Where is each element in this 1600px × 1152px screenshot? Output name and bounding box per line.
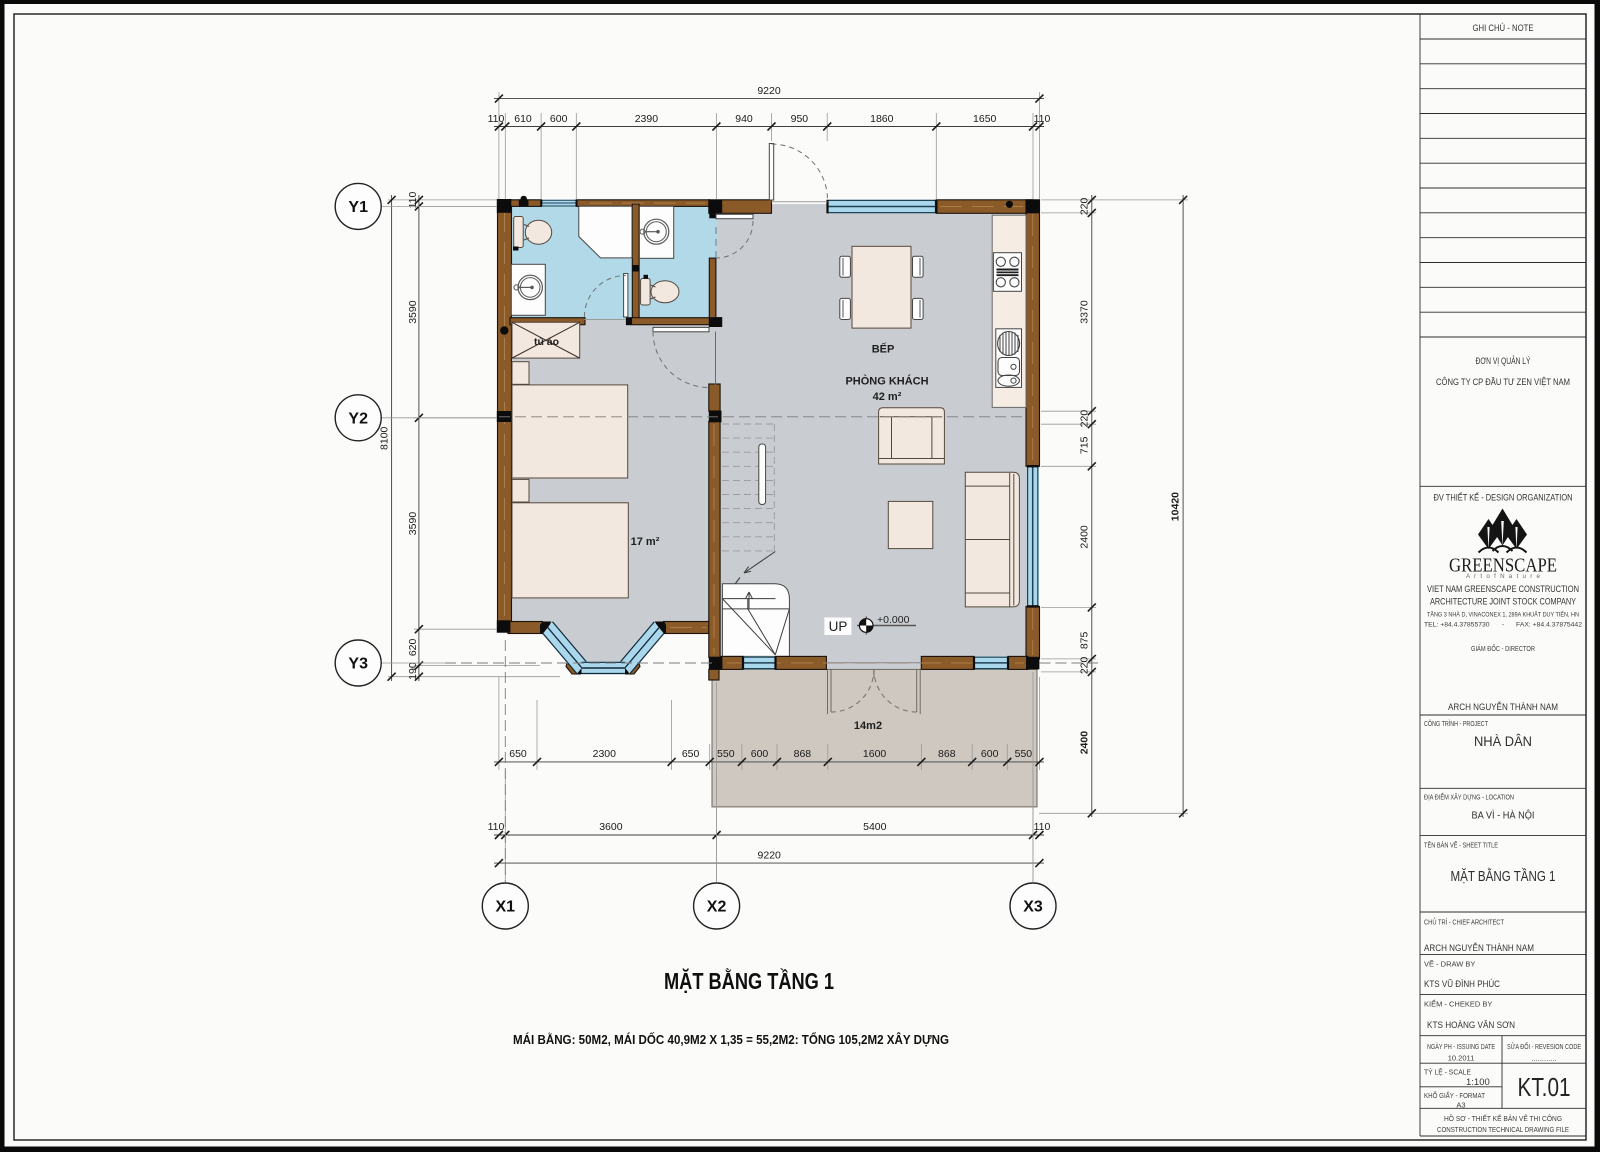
svg-text:ARCH NGUYỄN THÀNH NAM: ARCH NGUYỄN THÀNH NAM xyxy=(1424,942,1534,954)
svg-text:X2: X2 xyxy=(707,899,727,916)
svg-text:650: 650 xyxy=(682,748,700,760)
svg-text:868: 868 xyxy=(938,748,956,760)
svg-text:VẼ - DRAW BY: VẼ - DRAW BY xyxy=(1424,960,1475,969)
svg-text:620: 620 xyxy=(407,638,419,656)
svg-text:600: 600 xyxy=(981,748,999,760)
svg-text:Y3: Y3 xyxy=(348,656,368,673)
svg-text:220: 220 xyxy=(1079,410,1091,428)
svg-text:MẶT BẰNG TẦNG 1: MẶT BẰNG TẦNG 1 xyxy=(1451,867,1556,885)
svg-text:550: 550 xyxy=(1015,748,1033,760)
svg-text:220: 220 xyxy=(1079,656,1091,674)
svg-text:ARCHITECTURE JOINT STOCK COMPA: ARCHITECTURE JOINT STOCK COMPANY xyxy=(1430,597,1577,608)
svg-text:KTS VŨ ĐÌNH PHÚC: KTS VŨ ĐÌNH PHÚC xyxy=(1424,979,1500,990)
svg-text:A r t o f N a t u r e: A r t o f N a t u r e xyxy=(1466,573,1541,580)
svg-text:KHỔ GIẤY - FORMAT: KHỔ GIẤY - FORMAT xyxy=(1424,1090,1485,1100)
svg-text:CÔNG TRÌNH - PROJECT: CÔNG TRÌNH - PROJECT xyxy=(1424,719,1488,728)
svg-text:CÔNG TY CP ĐẦU TƯ ZEN VIỆT NAM: CÔNG TY CP ĐẦU TƯ ZEN VIỆT NAM xyxy=(1436,377,1570,388)
svg-text:10.2011: 10.2011 xyxy=(1448,1054,1475,1063)
svg-text:3600: 3600 xyxy=(599,821,623,833)
svg-text:1600: 1600 xyxy=(863,748,887,760)
svg-text:2390: 2390 xyxy=(635,113,659,125)
svg-text:ĐƠN VỊ QUẢN LÝ: ĐƠN VỊ QUẢN LÝ xyxy=(1476,355,1531,367)
svg-text:17 m²: 17 m² xyxy=(631,536,660,548)
svg-text:3590: 3590 xyxy=(407,300,419,324)
svg-text:CHỦ TRÌ - CHIEF ARCHITECT: CHỦ TRÌ - CHIEF ARCHITECT xyxy=(1424,918,1504,927)
svg-text:940: 940 xyxy=(735,113,753,125)
svg-text:VIET NAM GREENSCAPE CONSTRUCTI: VIET NAM GREENSCAPE CONSTRUCTION xyxy=(1427,584,1579,595)
svg-text:TEL: +84.4.37855730: TEL: +84.4.37855730 xyxy=(1424,622,1490,629)
svg-text:............: ............ xyxy=(1531,1054,1556,1063)
svg-text:110: 110 xyxy=(1034,113,1051,125)
svg-text:9220: 9220 xyxy=(758,850,782,862)
svg-text:600: 600 xyxy=(751,748,769,760)
svg-text:190: 190 xyxy=(407,662,419,680)
svg-text:610: 610 xyxy=(514,113,532,125)
svg-text:14m2: 14m2 xyxy=(854,720,882,732)
svg-text:2300: 2300 xyxy=(593,748,617,760)
svg-text:+0.000: +0.000 xyxy=(877,614,910,626)
svg-text:5400: 5400 xyxy=(863,821,887,833)
svg-text:42 m²: 42 m² xyxy=(873,391,902,403)
svg-text:110: 110 xyxy=(407,191,419,208)
svg-text:HỒ SƠ - THIẾT KẾ BẢN VẼ THI CÔ: HỒ SƠ - THIẾT KẾ BẢN VẼ THI CÔNG xyxy=(1444,1113,1562,1123)
svg-text:1:100: 1:100 xyxy=(1466,1077,1490,1088)
svg-text:CONSTRUCTION TECHNICAL DRAWING: CONSTRUCTION TECHNICAL DRAWING FILE xyxy=(1437,1125,1569,1134)
svg-text:Y1: Y1 xyxy=(348,199,368,216)
svg-text:TỶ LỆ - SCALE: TỶ LỆ - SCALE xyxy=(1424,1068,1471,1077)
svg-text:110: 110 xyxy=(488,113,505,125)
svg-text:875: 875 xyxy=(1079,631,1091,649)
svg-text:UP: UP xyxy=(829,619,848,634)
svg-text:950: 950 xyxy=(791,113,809,125)
svg-text:SỬA ĐỔI - REVESION CODE: SỬA ĐỔI - REVESION CODE xyxy=(1507,1042,1581,1051)
svg-text:FAX: +84.4.37875442: FAX: +84.4.37875442 xyxy=(1516,622,1582,629)
svg-text:600: 600 xyxy=(550,113,568,125)
svg-text:1650: 1650 xyxy=(973,113,997,125)
svg-text:BA VÌ - HÀ NỘI: BA VÌ - HÀ NỘI xyxy=(1472,809,1535,822)
svg-text:110: 110 xyxy=(1034,821,1051,833)
svg-text:X3: X3 xyxy=(1023,899,1043,916)
svg-text:MÁI BẰNG: 50M2, MÁI DỐC 40,9M2: MÁI BẰNG: 50M2, MÁI DỐC 40,9M2 X 1,35 = … xyxy=(513,1032,949,1047)
svg-text:ĐV THIẾT KẾ - DESIGN ORGANIZAT: ĐV THIẾT KẾ - DESIGN ORGANIZATION xyxy=(1434,493,1573,504)
svg-text:8100: 8100 xyxy=(378,426,390,450)
svg-text:110: 110 xyxy=(488,821,505,833)
svg-text:220: 220 xyxy=(1079,197,1091,215)
svg-text:TÊN BẢN VẼ - SHEET TITLE: TÊN BẢN VẼ - SHEET TITLE xyxy=(1424,841,1498,850)
svg-text:NHÀ DÂN: NHÀ DÂN xyxy=(1474,734,1532,749)
svg-text:9220: 9220 xyxy=(757,85,781,97)
svg-text:KT.01: KT.01 xyxy=(1518,1072,1571,1102)
svg-text:MẶT BẰNG TẦNG 1: MẶT BẰNG TẦNG 1 xyxy=(664,967,834,994)
svg-text:2400: 2400 xyxy=(1079,731,1091,755)
svg-text:tủ áo: tủ áo xyxy=(534,336,559,348)
svg-text:X1: X1 xyxy=(496,899,516,916)
svg-text:Y2: Y2 xyxy=(348,410,368,427)
svg-text:650: 650 xyxy=(509,748,527,760)
svg-text:868: 868 xyxy=(794,748,812,760)
svg-text:1860: 1860 xyxy=(870,113,894,125)
svg-text:NGÀY PH - ISSUING DATE: NGÀY PH - ISSUING DATE xyxy=(1427,1042,1495,1051)
svg-text:GIÁM ĐỐC - DIRECTOR: GIÁM ĐỐC - DIRECTOR xyxy=(1471,643,1535,653)
svg-text:10420: 10420 xyxy=(1170,492,1182,521)
svg-text:ĐỊA ĐIỂM XÂY DỰNG - LOCATION: ĐỊA ĐIỂM XÂY DỰNG - LOCATION xyxy=(1424,793,1514,802)
svg-text:-: - xyxy=(1502,622,1504,629)
svg-text:715: 715 xyxy=(1079,436,1091,454)
svg-text:550: 550 xyxy=(717,748,735,760)
svg-text:PHÒNG KHÁCH: PHÒNG KHÁCH xyxy=(845,375,928,388)
svg-text:3370: 3370 xyxy=(1079,300,1091,324)
svg-text:GHI CHÚ - NOTE: GHI CHÚ - NOTE xyxy=(1473,23,1534,34)
svg-text:2400: 2400 xyxy=(1079,525,1091,549)
svg-text:BẾP: BẾP xyxy=(872,343,895,356)
svg-text:KTS HOÀNG VĂN SƠN: KTS HOÀNG VĂN SƠN xyxy=(1427,1020,1515,1031)
svg-text:ARCH NGUYỄN THÀNH NAM: ARCH NGUYỄN THÀNH NAM xyxy=(1448,701,1558,713)
svg-text:3590: 3590 xyxy=(407,512,419,536)
svg-text:KIỂM - CHEKED BY: KIỂM - CHEKED BY xyxy=(1424,1000,1492,1009)
